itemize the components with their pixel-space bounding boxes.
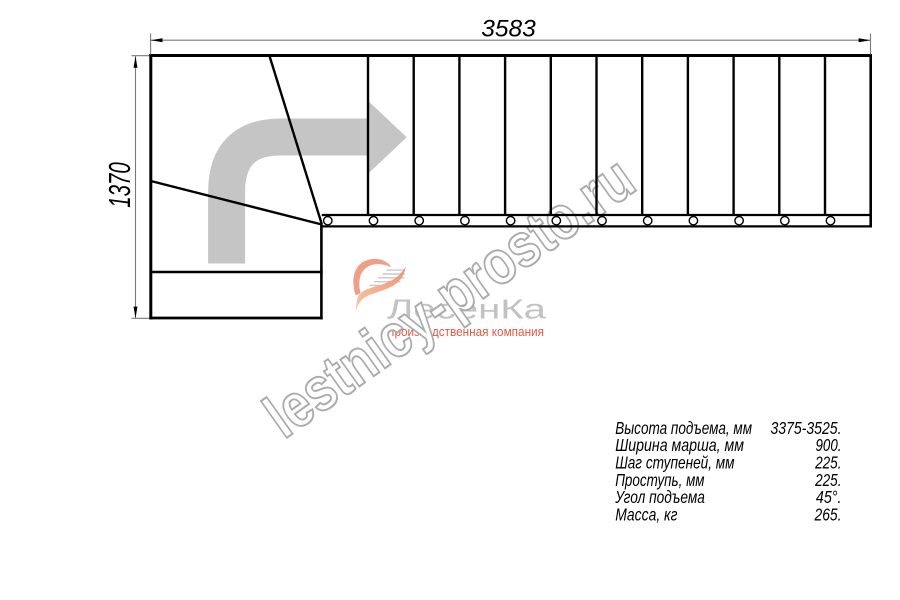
- svg-text:Масса, кг: Масса, кг: [615, 504, 678, 524]
- svg-text:3583: 3583: [481, 15, 536, 42]
- svg-text:265.: 265.: [814, 504, 842, 524]
- svg-text:1370: 1370: [102, 162, 137, 208]
